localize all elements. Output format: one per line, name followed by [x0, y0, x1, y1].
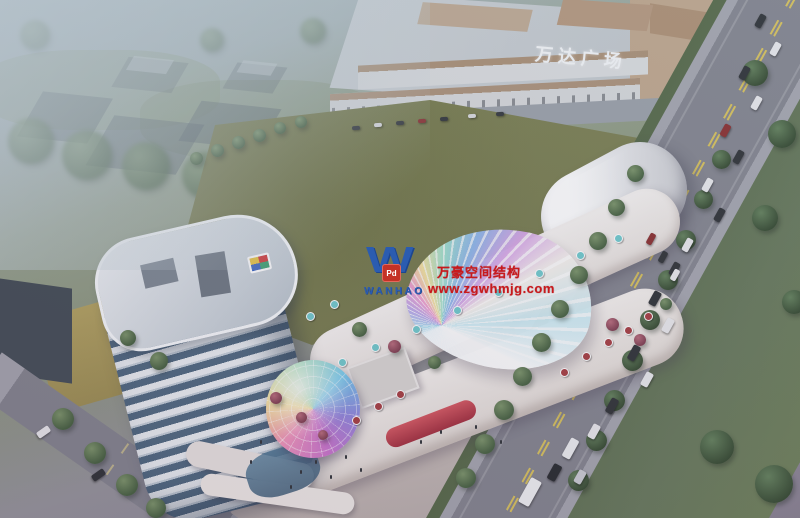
rainbow-dome	[266, 360, 360, 458]
blossom-tree	[388, 340, 401, 353]
tree	[768, 120, 796, 148]
umbrella-teal	[371, 343, 380, 352]
umbrella-red	[374, 402, 383, 411]
tree	[190, 152, 203, 165]
umbrella-red	[396, 390, 405, 399]
tree	[52, 408, 74, 430]
parked-car	[468, 114, 476, 119]
watermark-brand: WANHAO	[364, 286, 425, 297]
watermark: W Pd WANHAO 万豪空间结构 www.zgwhmjg.com	[360, 240, 600, 320]
tree	[62, 130, 112, 180]
tree	[211, 144, 224, 157]
tree	[494, 400, 514, 420]
blossom-tree	[270, 392, 282, 404]
umbrella-red	[560, 368, 569, 377]
tree	[755, 465, 793, 503]
umbrella-red	[604, 338, 613, 347]
umbrella-red	[352, 416, 361, 425]
tree	[700, 430, 734, 464]
parked-car	[418, 119, 426, 124]
tree	[120, 330, 136, 346]
pedestrian	[440, 430, 442, 434]
rooftop-unit	[140, 258, 179, 289]
umbrella-teal	[338, 358, 347, 367]
tree	[150, 352, 168, 370]
tree	[660, 298, 672, 310]
pedestrian	[290, 485, 292, 489]
tree	[428, 356, 441, 369]
pedestrian	[250, 460, 252, 464]
umbrella-teal	[614, 234, 623, 243]
tower-logo-chip	[247, 252, 272, 274]
tree	[20, 20, 50, 50]
pedestrian	[300, 470, 302, 474]
pedestrian	[315, 460, 317, 464]
blossom-tree	[296, 412, 307, 423]
tree	[295, 116, 307, 128]
umbrella-teal	[412, 325, 421, 334]
tree	[300, 18, 326, 44]
tree	[274, 122, 286, 134]
watermark-website-line: www.zgwhmjg.com	[428, 281, 555, 296]
tree	[475, 434, 495, 454]
dome-sheen	[266, 360, 360, 458]
pedestrian	[475, 425, 477, 429]
umbrella-teal	[306, 312, 315, 321]
rooftop-unit	[195, 251, 231, 297]
tree	[456, 468, 476, 488]
tree	[84, 442, 106, 464]
blossom-tree	[606, 318, 619, 331]
tree	[752, 205, 778, 231]
parked-car	[440, 117, 448, 122]
tree	[513, 367, 532, 386]
pedestrian	[345, 455, 347, 459]
tree	[608, 199, 625, 216]
pedestrian	[360, 468, 362, 472]
parked-car	[496, 112, 504, 117]
tree	[8, 118, 54, 164]
tree	[253, 129, 266, 142]
umbrella-teal	[330, 300, 339, 309]
pedestrian	[330, 475, 332, 479]
umbrella-red	[582, 352, 591, 361]
umbrella-red	[644, 312, 653, 321]
watermark-company-line: 万豪空间结构	[437, 262, 521, 281]
blossom-tree	[318, 430, 328, 440]
watermark-badge-text: Pd	[386, 269, 396, 278]
tree	[782, 290, 800, 314]
architectural-rendering: 万达广场	[0, 0, 800, 518]
parked-car	[396, 121, 404, 126]
tree	[694, 190, 713, 209]
tree	[200, 28, 224, 52]
tree	[232, 136, 245, 149]
tree	[352, 322, 367, 337]
tree	[627, 165, 644, 182]
parked-car	[352, 126, 360, 131]
watermark-logo-badge: Pd	[382, 264, 401, 282]
umbrella-red	[624, 326, 633, 335]
pedestrian	[500, 440, 502, 444]
tree	[532, 333, 551, 352]
tree	[146, 498, 166, 518]
pedestrian	[420, 440, 422, 444]
parked-car	[374, 123, 382, 128]
tree	[712, 150, 731, 169]
tree	[116, 474, 138, 496]
pedestrian	[260, 440, 262, 444]
tree	[122, 142, 170, 190]
